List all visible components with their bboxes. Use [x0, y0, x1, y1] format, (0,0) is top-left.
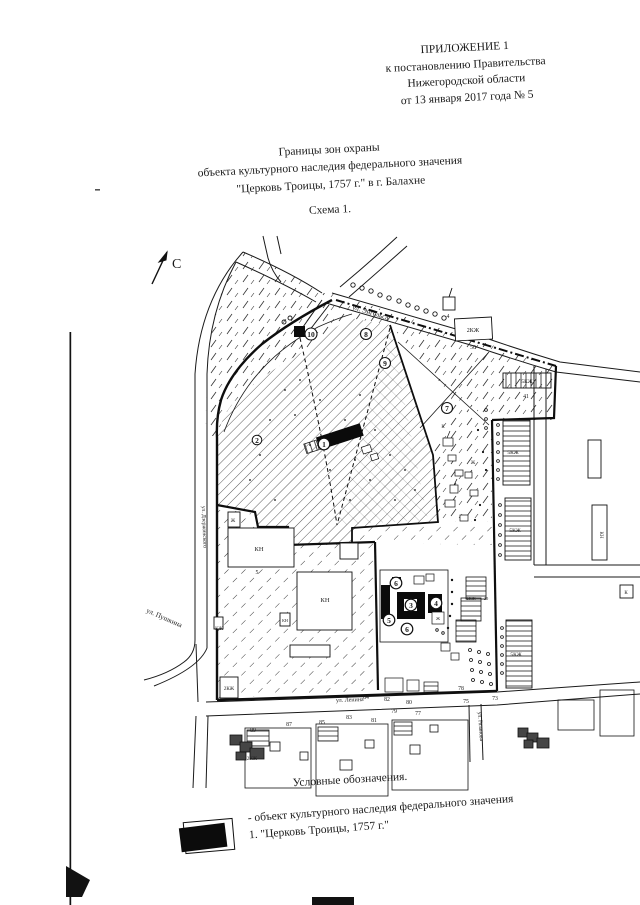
svg-text:4: 4	[447, 314, 450, 320]
svg-text:5: 5	[256, 570, 259, 576]
zone-mid-east	[433, 396, 492, 522]
svg-text:6: 6	[394, 579, 398, 588]
north-label: С	[172, 257, 181, 272]
svg-text:2: 2	[255, 436, 259, 445]
svg-text:73: 73	[492, 696, 498, 702]
street-label-lenina: ул. Ленина	[336, 697, 364, 704]
svg-text:2КЖ: 2КЖ	[247, 757, 258, 762]
legend-heritage-symbol	[183, 818, 236, 854]
svg-text:2КЖ: 2КЖ	[467, 328, 480, 334]
svg-text:5КЖ: 5КЖ	[509, 528, 520, 534]
street-label-pushkina: ул. Пушкина	[145, 607, 184, 630]
svg-text:5КЖ: 5КЖ	[510, 652, 521, 658]
marker-9: 9	[380, 358, 391, 369]
svg-text:75: 75	[463, 699, 469, 705]
north-arrow: С	[152, 252, 181, 284]
svg-text:5: 5	[387, 616, 391, 625]
svg-text:84: 84	[363, 695, 369, 701]
marker-8: 8	[361, 329, 372, 340]
marker-6b: 6	[401, 623, 413, 635]
marker-6a: 6	[390, 577, 402, 589]
marker-4: 4	[430, 597, 442, 609]
svg-text:20: 20	[484, 596, 489, 601]
svg-text:5КЖ: 5КЖ	[521, 379, 532, 385]
svg-text:3: 3	[409, 601, 413, 610]
street-label-ryazanova: ул. Рязанова	[476, 712, 484, 742]
scanned-document-page: ПРИЛОЖЕНИЕ 1 к постановлению Правительст…	[0, 0, 640, 905]
svg-text:80: 80	[406, 700, 412, 706]
svg-text:КН: КН	[282, 618, 288, 623]
marker-1: 1	[318, 438, 330, 450]
street-label-west: ул. Дзержинского	[200, 506, 207, 548]
svg-text:КЖ: КЖ	[215, 627, 223, 632]
svg-text:79: 79	[391, 709, 397, 715]
svg-text:1: 1	[322, 440, 326, 449]
svg-text:82: 82	[384, 697, 390, 703]
svg-text:89: 89	[250, 728, 256, 734]
svg-text:10: 10	[307, 330, 315, 339]
svg-text:6: 6	[405, 625, 409, 634]
object-10-building	[294, 326, 305, 337]
svg-text:КН: КН	[598, 532, 603, 539]
stepped-building	[456, 577, 486, 642]
svg-text:КН: КН	[254, 546, 263, 553]
legend-heading-text: Условные обозначения.	[292, 771, 407, 789]
svg-text:9: 9	[383, 359, 387, 368]
svg-text:8: 8	[364, 330, 368, 339]
svg-text:50: 50	[470, 345, 476, 351]
marker-7: 7	[442, 403, 453, 414]
marker-3: 3	[405, 599, 417, 611]
svg-text:85: 85	[319, 720, 325, 726]
svg-text:КН: КН	[320, 597, 329, 604]
svg-text:2КЖ: 2КЖ	[466, 596, 476, 601]
svg-text:81: 81	[371, 718, 377, 724]
svg-text:Ж: Ж	[471, 461, 476, 466]
svg-text:5КЖ: 5КЖ	[507, 450, 518, 456]
marker-5: 5	[383, 614, 395, 626]
svg-text:83: 83	[346, 715, 352, 721]
svg-text:4: 4	[434, 599, 438, 608]
svg-text:41: 41	[523, 394, 529, 400]
svg-text:Ж: Ж	[231, 519, 236, 524]
site-plan-map: С 1 2 3 4 5 6 6 7 8 9 10 ул. Энгельса ул…	[0, 0, 640, 905]
marker-10: 10	[305, 328, 317, 340]
svg-text:87: 87	[286, 722, 292, 728]
legend-symbol-fill	[179, 823, 228, 852]
svg-text:7: 7	[445, 404, 449, 413]
svg-text:77: 77	[415, 711, 421, 717]
svg-text:78: 78	[458, 686, 464, 692]
svg-text:2КЖ: 2КЖ	[224, 687, 235, 692]
marker-2: 2	[252, 435, 262, 445]
